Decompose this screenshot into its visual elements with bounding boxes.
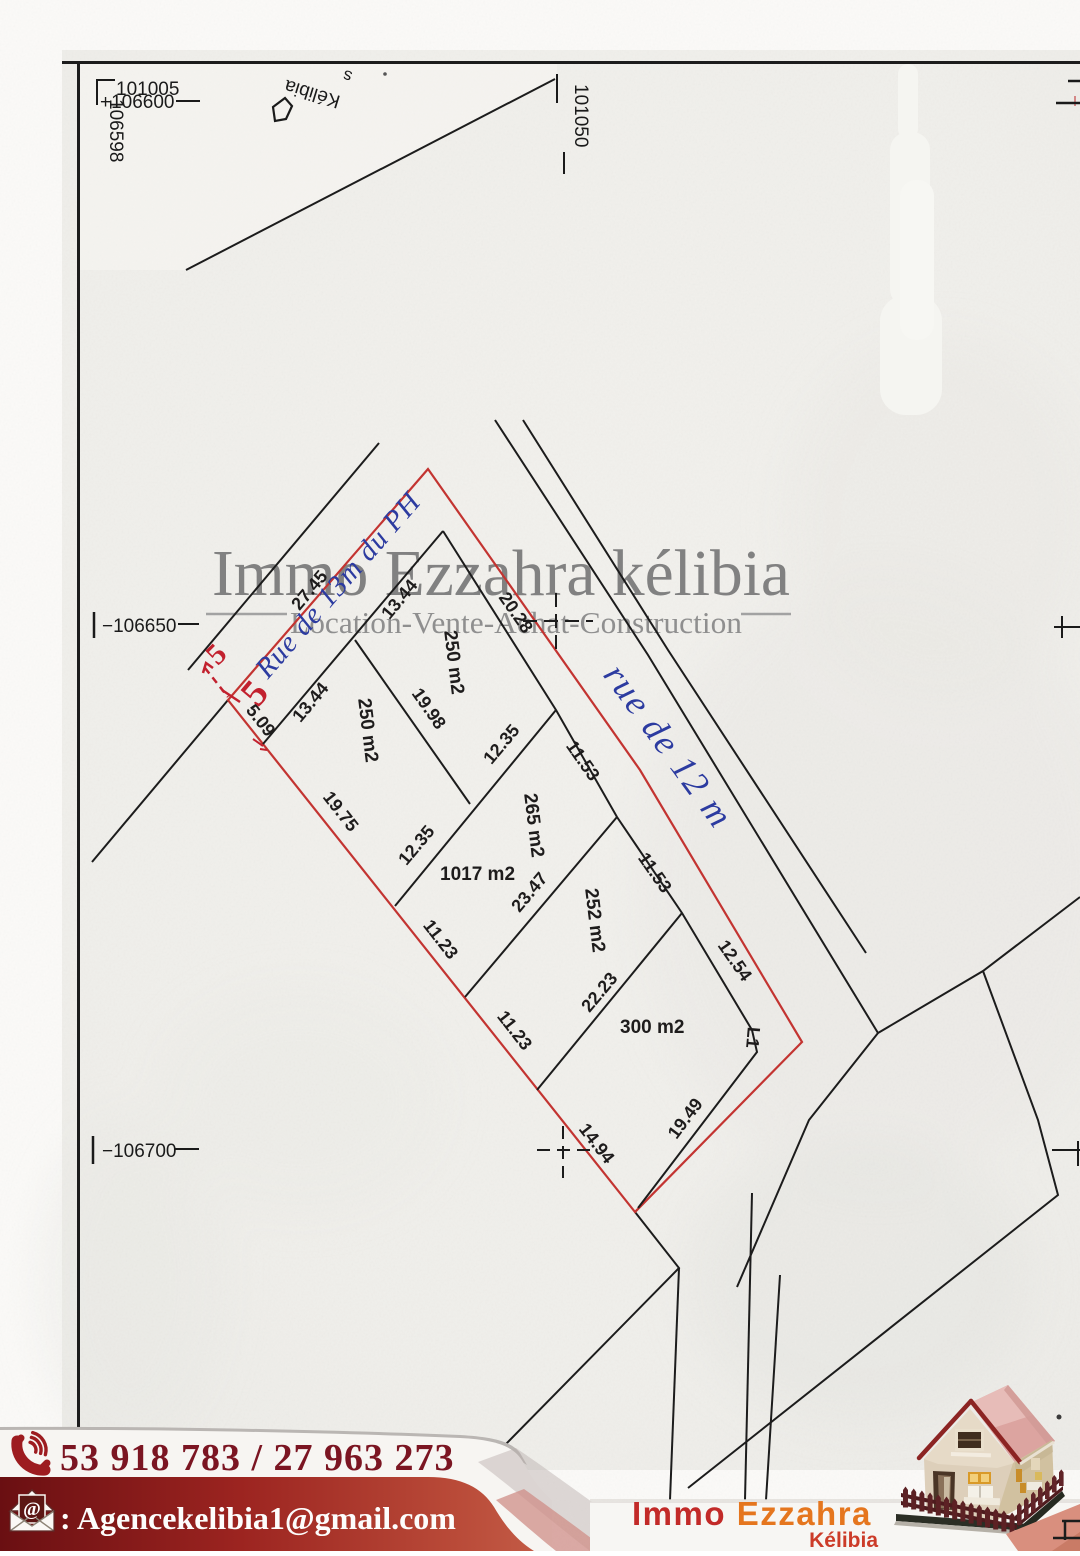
svg-text:Kélibia: Kélibia [809,1529,878,1551]
svg-text:1017 m2: 1017 m2 [440,864,515,885]
svg-text:L1: L1 [742,1026,764,1049]
svg-text:−106650: −106650 [102,616,177,637]
svg-text:Immo Ezzahra: Immo Ezzahra [632,1495,872,1532]
svg-text:@: @ [23,1499,41,1520]
svg-text:53 918 783 / 27 963 273: 53 918 783 / 27 963 273 [60,1437,455,1479]
svg-text:−106700: −106700 [102,1141,177,1162]
svg-text:106598: 106598 [105,99,126,162]
svg-text:101050: 101050 [570,84,591,147]
svg-text:300 m2: 300 m2 [620,1017,684,1038]
svg-text:: Agencekelibia1@gmail.com: : Agencekelibia1@gmail.com [60,1500,456,1536]
